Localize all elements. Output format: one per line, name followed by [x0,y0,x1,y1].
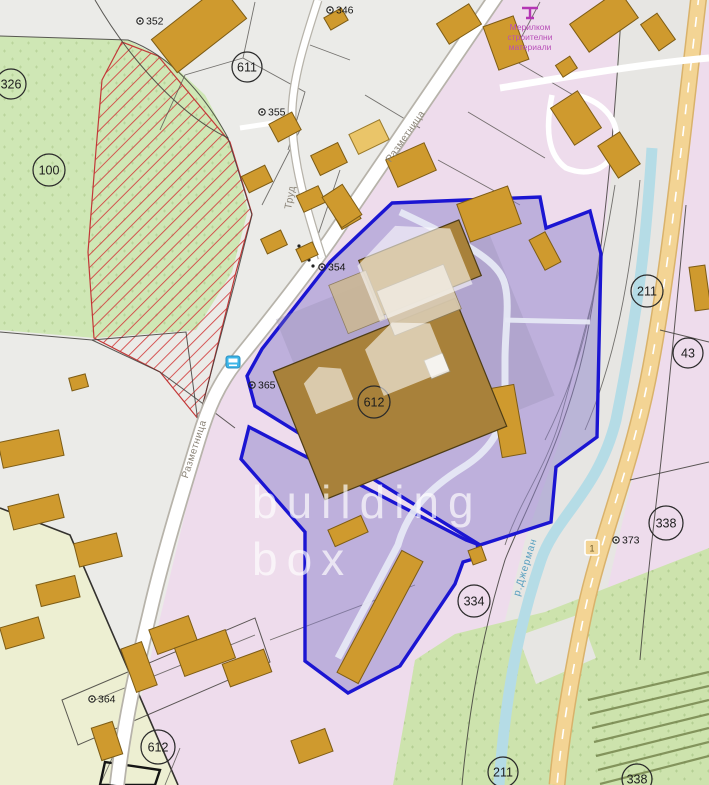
svg-text:338: 338 [627,773,648,785]
cadastral-map[interactable]: 1 612 building box 326 100 611 211 43 33… [0,0,709,785]
map-canvas[interactable]: 1 612 building box 326 100 611 211 43 33… [0,0,709,785]
road-shield: 1 [585,540,599,555]
svg-text:365: 365 [258,380,276,392]
svg-text:211: 211 [493,766,513,780]
svg-text:Мерилком: Мерилком [510,22,551,32]
svg-text:1: 1 [589,544,594,554]
svg-text:352: 352 [146,16,164,28]
svg-text:354: 354 [328,262,346,274]
svg-text:326: 326 [1,78,22,92]
svg-text:211: 211 [637,285,657,299]
svg-text:612: 612 [148,741,169,755]
svg-text:43: 43 [681,347,695,361]
svg-text:100: 100 [39,164,60,178]
svg-text:612: 612 [364,396,385,410]
svg-text:строителни: строителни [508,32,553,42]
svg-text:373: 373 [622,535,640,547]
svg-text:355: 355 [268,107,286,119]
bus-stop-icon[interactable] [226,356,240,368]
svg-text:материали: материали [509,42,552,52]
svg-text:346: 346 [336,5,354,17]
watermark-brand-line2: box [252,533,353,585]
svg-text:334: 334 [464,595,485,609]
svg-text:364: 364 [98,694,116,706]
svg-text:338: 338 [656,517,677,531]
watermark-brand-line1: building [252,476,483,528]
svg-text:611: 611 [237,61,257,75]
